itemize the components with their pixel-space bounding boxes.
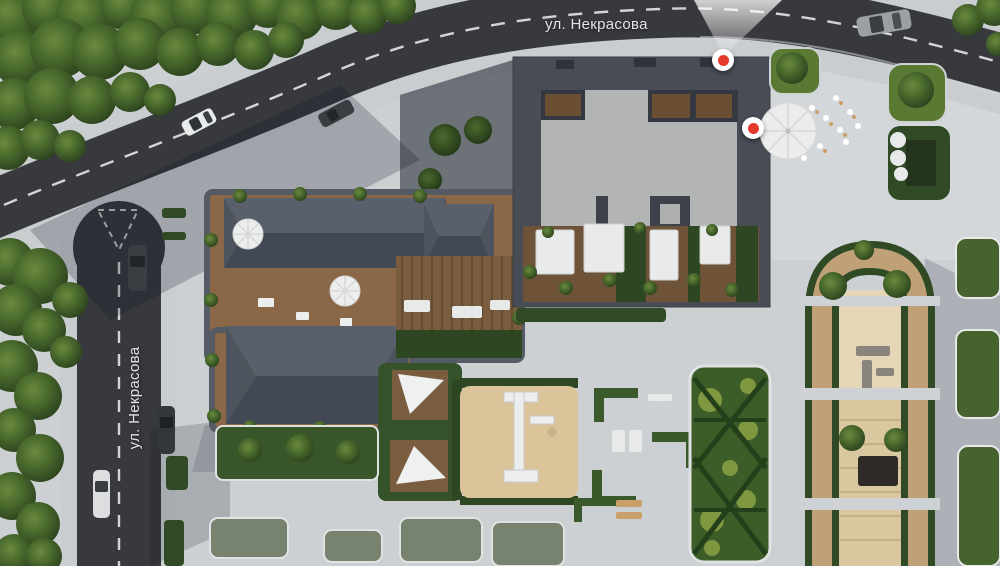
foundation-hedge (516, 308, 666, 322)
car-white-parked-west (93, 470, 110, 518)
parterre-garden (690, 366, 770, 562)
park-sand-area (838, 290, 908, 400)
street-label-top: ул. Некрасова (545, 16, 648, 33)
masterplan-viewport: ул. Некрасова ул. Некрасова (0, 0, 1000, 566)
umbrella-icon (330, 276, 360, 306)
rooftop-terraces (523, 222, 759, 302)
hedge-lounge-nook (888, 126, 950, 200)
pergola-terrace (396, 256, 522, 330)
marker-dot-icon (748, 123, 759, 134)
building-marker-2[interactable] (742, 117, 764, 139)
cafe-umbrella (760, 103, 816, 159)
building-north-block (513, 57, 770, 322)
umbrella-icon (233, 219, 263, 249)
car-dark-on-road (128, 245, 147, 291)
hedge-band-south (396, 330, 522, 358)
marker-dot-icon (718, 55, 729, 66)
car-dark-parked-west (158, 406, 175, 454)
park-seat-block (858, 456, 898, 486)
east-edge-planters (956, 238, 1000, 566)
linear-park-strip (800, 238, 1000, 566)
building-marker-1[interactable] (712, 49, 734, 71)
site-plan-render (0, 0, 1000, 566)
sand-playground (452, 378, 578, 505)
street-label-left: ул. Некрасова (126, 343, 142, 453)
